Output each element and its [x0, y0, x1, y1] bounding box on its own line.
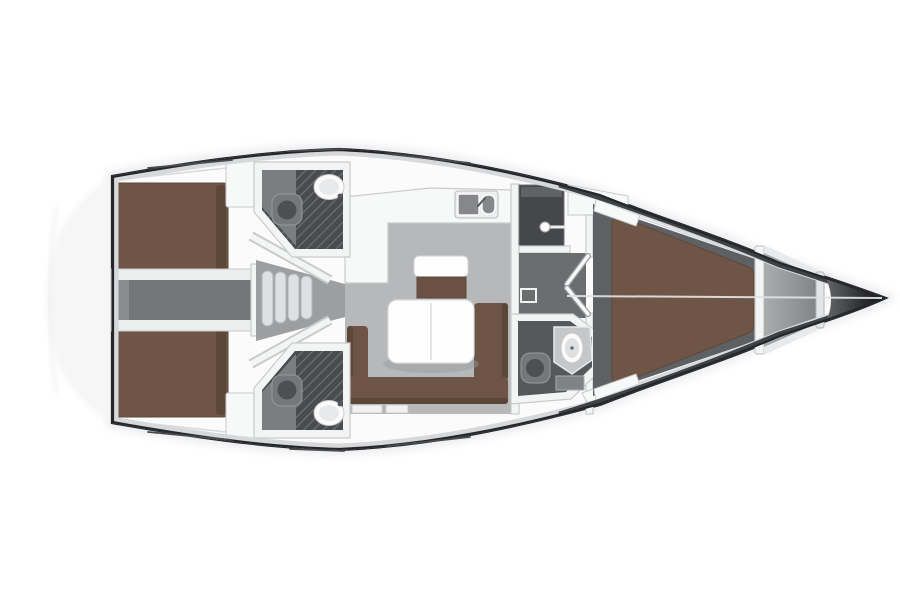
- toilet-bowl: [526, 359, 544, 377]
- corridor-step-box: [521, 289, 536, 302]
- sofa-bottom-back: [347, 398, 508, 404]
- stair-step-2: [275, 272, 286, 323]
- aft-port-double-berth: [114, 183, 228, 273]
- sink-basin-main: [458, 194, 479, 215]
- stair-step-1: [262, 271, 273, 326]
- yacht-floor-plan: yacht-floor-plan: [0, 0, 900, 600]
- toilet-forward: [521, 353, 550, 383]
- transom-swim-platform: [46, 176, 112, 423]
- stair-step-3: [288, 274, 299, 321]
- salon: [345, 188, 515, 414]
- nav-seat-base: [417, 277, 466, 298]
- toilet-port: [272, 194, 302, 225]
- drain-icon: [570, 346, 574, 350]
- wardrobe-front-wall: [519, 246, 570, 253]
- sofa-right-back: [502, 303, 508, 380]
- engine-passage-end-shade: [117, 280, 129, 320]
- toilet-starboard: [272, 375, 302, 406]
- engine-compartment-passage: [112, 264, 260, 336]
- aft-port-cabinet: [226, 160, 256, 207]
- aft-stbd-berth-shading: [216, 329, 226, 415]
- toilet-bowl: [278, 201, 297, 220]
- faucet-icon: [338, 402, 343, 407]
- rod-end-cap: [540, 222, 550, 232]
- engine-passage-floor: [117, 280, 251, 320]
- sink-inner: [319, 405, 339, 421]
- nav-seat: [414, 256, 468, 298]
- corridor-floor: [519, 253, 586, 318]
- aft-port-berth-shading: [216, 185, 226, 271]
- fwd-cabin-bulkhead-upper: [586, 215, 593, 257]
- sink-inner: [319, 179, 339, 195]
- wardrobe: [519, 185, 566, 246]
- sink-port: [314, 175, 344, 200]
- faucet-icon: [338, 194, 343, 199]
- nav-seat-cushion: [414, 256, 468, 277]
- sink-starboard: [314, 401, 344, 426]
- salon-locker-2: [386, 405, 408, 413]
- toilet-bowl: [278, 381, 297, 400]
- aft-stbd-cabinet: [226, 393, 256, 440]
- vanity-drawers: [556, 376, 584, 390]
- stair-step-4: [301, 276, 312, 319]
- salon-locker-1: [352, 405, 382, 413]
- galley-sink: [455, 191, 498, 218]
- aft-stbd-double-berth: [114, 327, 228, 417]
- salon-table: [388, 300, 474, 363]
